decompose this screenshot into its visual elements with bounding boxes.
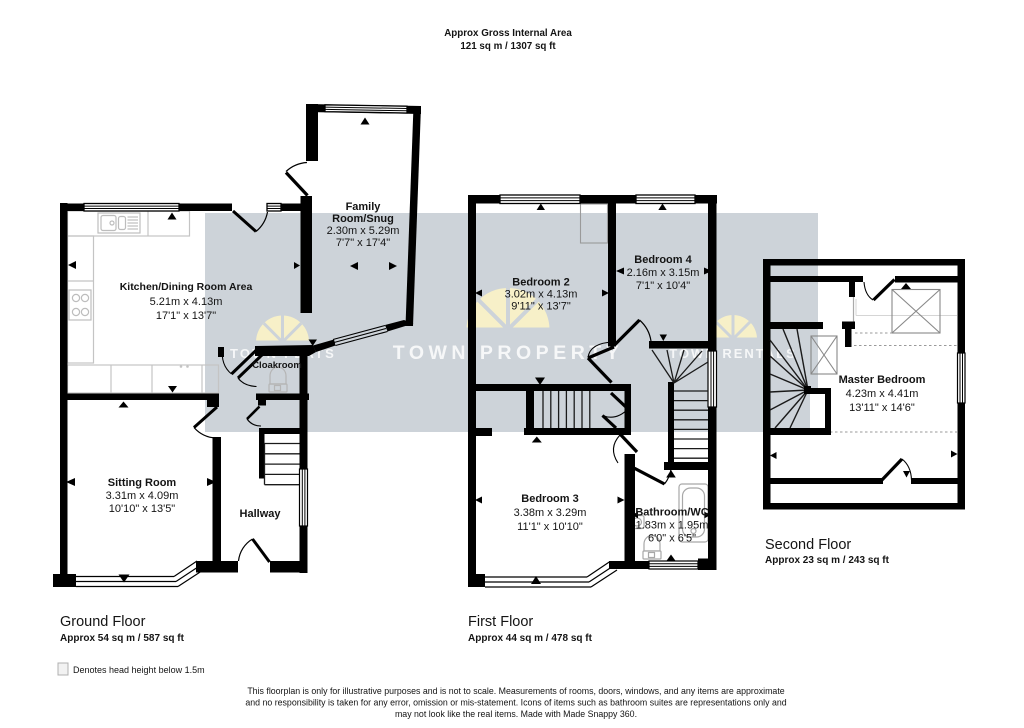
svg-text:Family: Family	[346, 201, 382, 213]
svg-text:Ground Floor: Ground Floor	[60, 614, 146, 630]
svg-text:Room/Snug: Room/Snug	[332, 213, 394, 225]
svg-text:Master Bedroom: Master Bedroom	[839, 374, 926, 386]
svg-text:Bedroom 3: Bedroom 3	[521, 493, 578, 505]
svg-text:may not look like the real ite: may not look like the real items. Made w…	[395, 709, 637, 719]
svg-text:This floorplan is only for ill: This floorplan is only for illustrative …	[247, 686, 784, 696]
svg-text:3.31m x 4.09m: 3.31m x 4.09m	[106, 490, 179, 502]
svg-text:7'1" x 10'4": 7'1" x 10'4"	[636, 280, 690, 292]
svg-text:2.16m x 3.15m: 2.16m x 3.15m	[627, 267, 700, 279]
svg-text:13'11" x 14'6": 13'11" x 14'6"	[849, 402, 915, 414]
svg-text:3.38m x 3.29m: 3.38m x 3.29m	[514, 507, 587, 519]
svg-text:Bedroom 2: Bedroom 2	[512, 277, 569, 289]
svg-text:Bathroom/WC: Bathroom/WC	[635, 507, 708, 519]
svg-text:11'1" x 10'10": 11'1" x 10'10"	[517, 521, 583, 533]
svg-text:1.83m x 1.95m: 1.83m x 1.95m	[636, 520, 709, 532]
svg-text:5.21m x 4.13m: 5.21m x 4.13m	[150, 296, 223, 308]
svg-text:7'7" x 17'4": 7'7" x 17'4"	[336, 237, 390, 249]
svg-text:Second Floor: Second Floor	[765, 537, 851, 553]
svg-text:Approx 23 sq m / 243 sq ft: Approx 23 sq m / 243 sq ft	[765, 555, 890, 566]
svg-text:4.23m x 4.41m: 4.23m x 4.41m	[846, 388, 919, 400]
svg-text:First Floor: First Floor	[468, 614, 533, 630]
svg-text:6'0" x 6'5": 6'0" x 6'5"	[648, 533, 696, 545]
svg-text:3.02m x 4.13m: 3.02m x 4.13m	[505, 289, 578, 301]
svg-text:Bedroom 4: Bedroom 4	[634, 254, 692, 266]
svg-text:Sitting Room: Sitting Room	[108, 477, 177, 489]
svg-text:Denotes head height below 1.5m: Denotes head height below 1.5m	[73, 665, 205, 675]
svg-text:10'10" x 13'5": 10'10" x 13'5"	[109, 503, 176, 515]
svg-text:and no responsibility is taken: and no responsibility is taken for any e…	[245, 698, 786, 708]
svg-text:Hallway: Hallway	[240, 508, 282, 520]
svg-text:121 sq m / 1307 sq ft: 121 sq m / 1307 sq ft	[460, 41, 556, 52]
svg-text:Approx Gross Internal Area: Approx Gross Internal Area	[444, 28, 572, 39]
svg-text:Approx 54 sq m / 587 sq ft: Approx 54 sq m / 587 sq ft	[60, 633, 185, 644]
svg-text:2.30m x 5.29m: 2.30m x 5.29m	[327, 225, 400, 237]
svg-text:9'11" x 13'7": 9'11" x 13'7"	[511, 301, 571, 313]
svg-text:Approx 44 sq m / 478 sq ft: Approx 44 sq m / 478 sq ft	[468, 633, 593, 644]
svg-text:Kitchen/Dining Room Area: Kitchen/Dining Room Area	[120, 281, 253, 293]
svg-text:17'1" x 13'7": 17'1" x 13'7"	[156, 310, 216, 322]
svg-text:Cloakroom: Cloakroom	[252, 360, 302, 371]
